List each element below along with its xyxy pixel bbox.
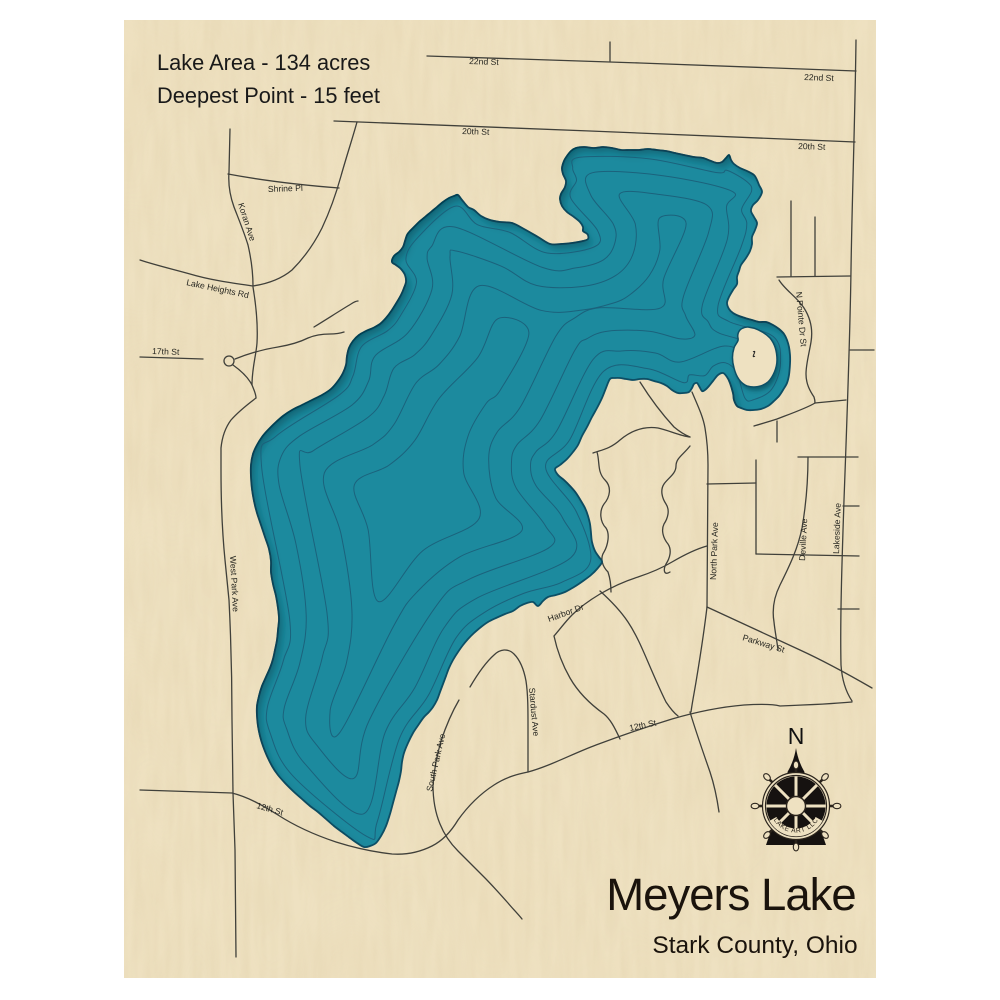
svg-text:20th St: 20th St bbox=[798, 141, 826, 152]
svg-text:Shrine Pl: Shrine Pl bbox=[268, 183, 303, 194]
svg-text:Deepest Point - 15 feet: Deepest Point - 15 feet bbox=[157, 83, 380, 108]
svg-text:20th St: 20th St bbox=[462, 126, 490, 137]
svg-text:North Park Ave: North Park Ave bbox=[708, 522, 720, 580]
svg-text:N: N bbox=[788, 723, 805, 749]
svg-text:Lakeside Ave: Lakeside Ave bbox=[831, 503, 843, 555]
svg-text:Lake Area - 134 acres: Lake Area - 134 acres bbox=[157, 50, 370, 75]
svg-text:17th St: 17th St bbox=[152, 346, 180, 357]
svg-text:Stark County, Ohio: Stark County, Ohio bbox=[652, 932, 857, 959]
svg-text:Meyers Lake: Meyers Lake bbox=[606, 869, 855, 920]
svg-text:22nd St: 22nd St bbox=[469, 56, 500, 67]
svg-text:22nd St: 22nd St bbox=[804, 72, 835, 83]
